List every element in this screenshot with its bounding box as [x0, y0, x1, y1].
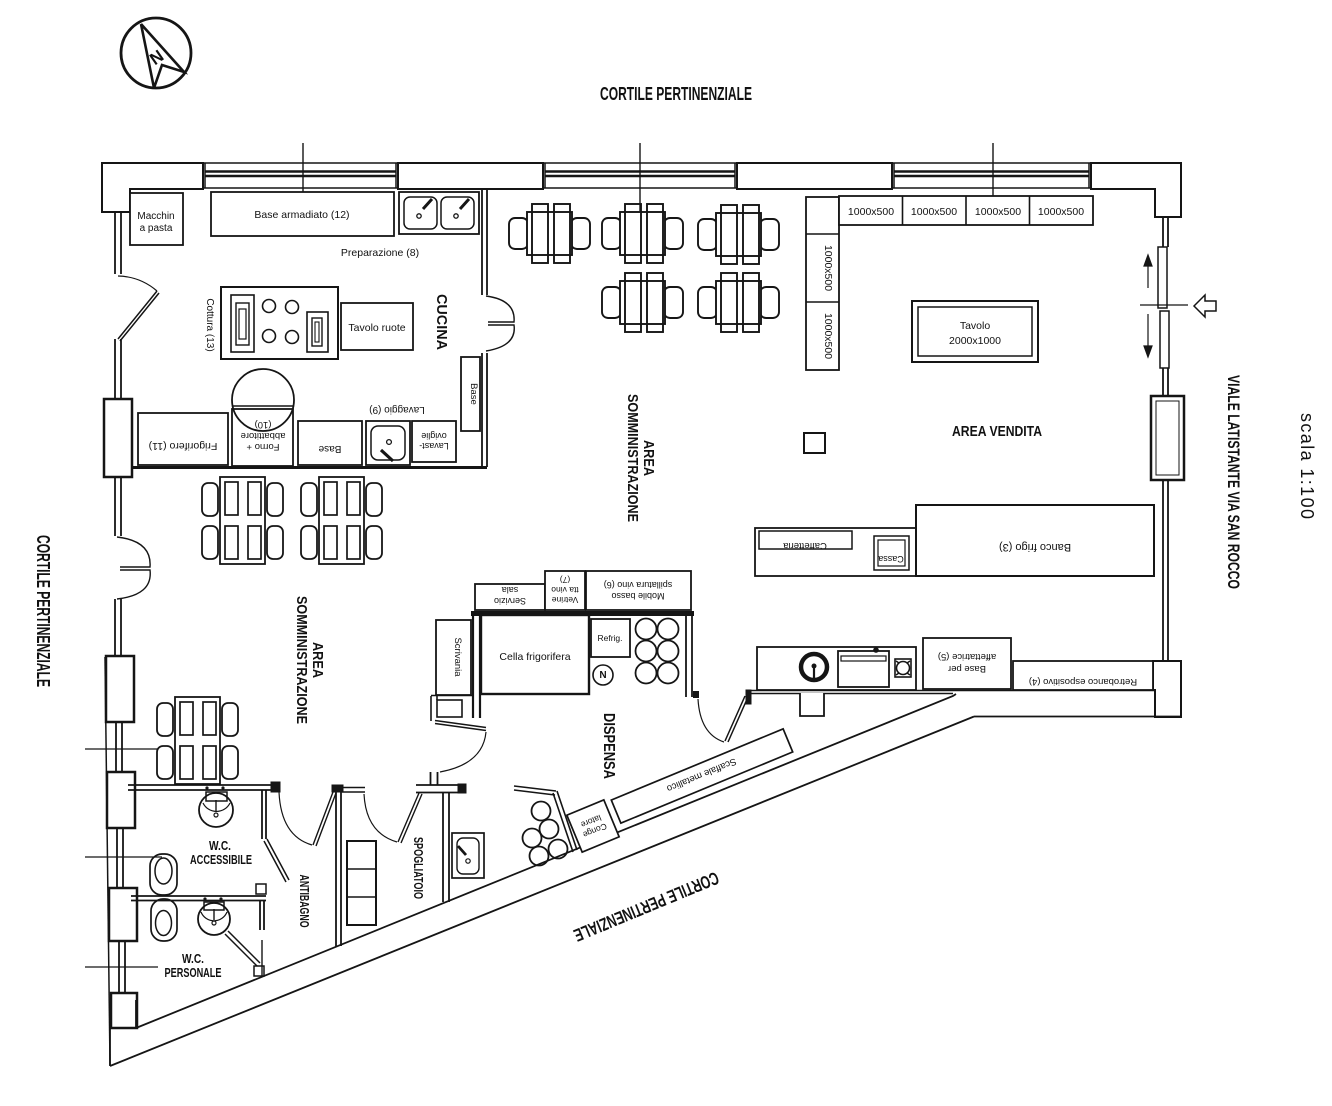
svg-text:Servizio: Servizio — [494, 596, 526, 606]
svg-text:Macchin: Macchin — [137, 211, 174, 222]
svg-text:DISPENSA: DISPENSA — [600, 713, 617, 779]
svg-text:1000x500: 1000x500 — [975, 206, 1021, 218]
svg-text:1000x500: 1000x500 — [848, 206, 894, 218]
svg-text:a pasta: a pasta — [140, 223, 173, 234]
svg-text:Tavolo ruote: Tavolo ruote — [348, 322, 405, 334]
svg-text:Forno +: Forno + — [246, 441, 279, 452]
svg-text:VIALE LATISTANTE VIA SAN ROCCO: VIALE LATISTANTE VIA SAN ROCCO — [1224, 375, 1243, 589]
svg-text:W.C.: W.C. — [209, 839, 231, 853]
svg-text:Base per: Base per — [948, 663, 986, 674]
svg-text:Refrig.: Refrig. — [597, 633, 622, 643]
svg-text:Preparazione (8): Preparazione (8) — [341, 247, 419, 259]
svg-text:PERSONALE: PERSONALE — [165, 966, 222, 980]
svg-text:AREA: AREA — [309, 642, 326, 678]
svg-text:W.C.: W.C. — [182, 952, 204, 966]
svg-text:Retrobanco espositivo (4): Retrobanco espositivo (4) — [1029, 676, 1137, 687]
svg-text:CORTILE PERTINENZIALE: CORTILE PERTINENZIALE — [33, 535, 53, 687]
svg-text:Vetrine: Vetrine — [551, 595, 578, 605]
svg-text:Tavolo: Tavolo — [960, 320, 991, 332]
svg-text:Cassa: Cassa — [878, 554, 904, 564]
svg-text:Scrivania: Scrivania — [452, 637, 463, 677]
svg-text:Base: Base — [318, 443, 341, 454]
svg-text:AREA: AREA — [640, 440, 657, 476]
svg-text:affettatrice (5): affettatrice (5) — [938, 651, 996, 662]
svg-text:tta vino: tta vino — [551, 585, 579, 595]
svg-text:N: N — [599, 668, 606, 679]
svg-text:SOMMINISTRAZIONE: SOMMINISTRAZIONE — [293, 596, 310, 724]
svg-text:abbattitore: abbattitore — [241, 430, 286, 441]
svg-text:sala: sala — [502, 585, 519, 595]
svg-text:Caffetteria: Caffetteria — [782, 540, 826, 551]
svg-text:AREA VENDITA: AREA VENDITA — [952, 423, 1042, 440]
svg-text:CORTILE PERTINENZIALE: CORTILE PERTINENZIALE — [600, 84, 752, 104]
svg-text:ANTIBAGNO: ANTIBAGNO — [297, 875, 312, 928]
svg-text:(7): (7) — [560, 575, 571, 585]
svg-text:1000x500: 1000x500 — [822, 313, 834, 359]
svg-text:Mobile basso: Mobile basso — [611, 591, 664, 601]
svg-text:oviglie: oviglie — [421, 431, 447, 441]
svg-text:(10): (10) — [255, 419, 272, 430]
svg-text:1000x500: 1000x500 — [822, 245, 834, 291]
svg-text:Base armadiato (12): Base armadiato (12) — [254, 209, 349, 221]
svg-text:spillatura vino (6): spillatura vino (6) — [604, 580, 673, 590]
svg-text:1000x500: 1000x500 — [1038, 206, 1084, 218]
svg-text:scala 1:100: scala 1:100 — [1297, 413, 1317, 519]
svg-text:Frigorifero (11): Frigorifero (11) — [149, 440, 218, 452]
svg-text:Banco frigo (3): Banco frigo (3) — [999, 541, 1071, 553]
svg-text:Base: Base — [468, 383, 479, 405]
svg-text:SPOGLIATOIO: SPOGLIATOIO — [411, 837, 426, 899]
svg-text:Cottura (13): Cottura (13) — [204, 298, 215, 351]
svg-text:Lavaggio (9): Lavaggio (9) — [369, 404, 425, 415]
svg-text:Cella frigorifera: Cella frigorifera — [499, 651, 570, 663]
svg-text:SOMMINISTRAZIONE: SOMMINISTRAZIONE — [624, 394, 641, 522]
svg-text:2000x1000: 2000x1000 — [949, 335, 1001, 347]
svg-text:CUCINA: CUCINA — [433, 294, 450, 350]
svg-text:Lavast-: Lavast- — [419, 441, 449, 451]
svg-text:1000x500: 1000x500 — [911, 206, 957, 218]
svg-text:ACCESSIBILE: ACCESSIBILE — [190, 853, 252, 867]
